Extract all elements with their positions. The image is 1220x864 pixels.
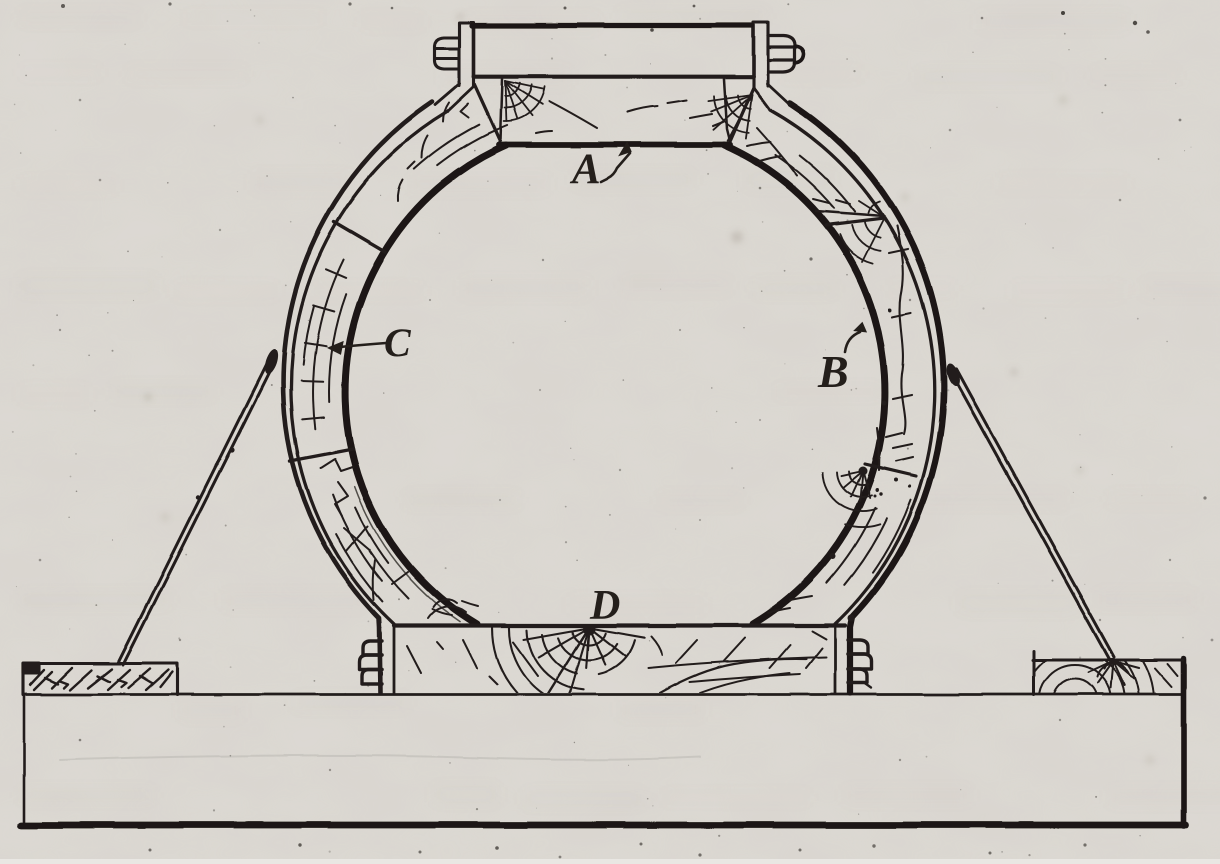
svg-text:B: B bbox=[817, 346, 849, 397]
svg-text:A: A bbox=[569, 146, 601, 193]
svg-text:D: D bbox=[589, 583, 620, 629]
svg-text:C: C bbox=[384, 320, 412, 365]
